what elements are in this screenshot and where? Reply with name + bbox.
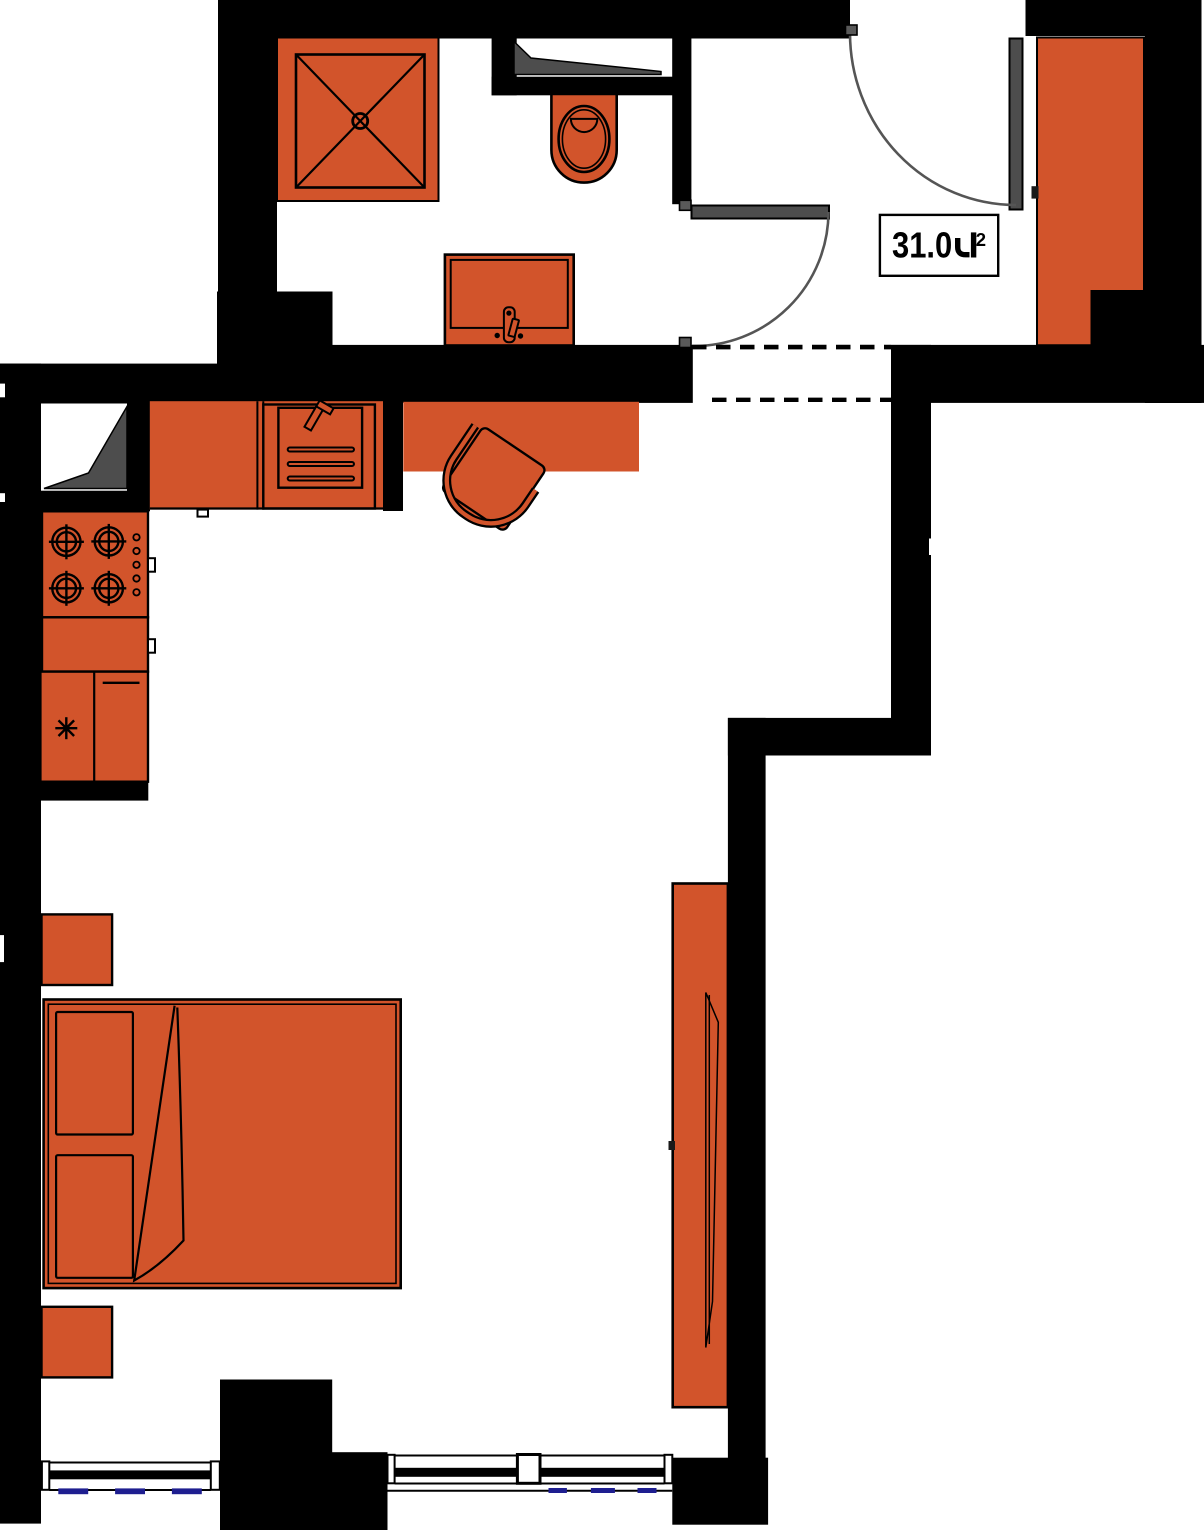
svg-text:31.0: 31.0 [892, 226, 952, 266]
svg-text:2: 2 [976, 229, 986, 250]
